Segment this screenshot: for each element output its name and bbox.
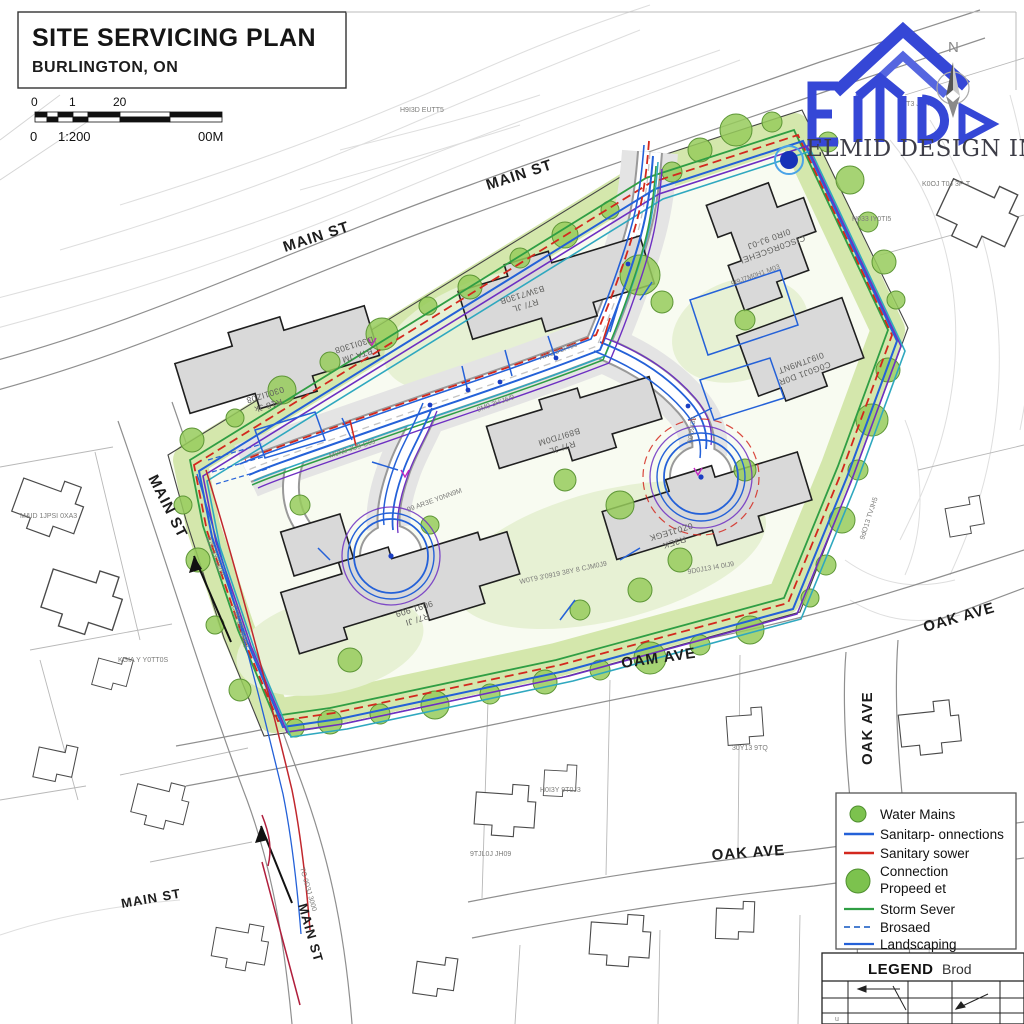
north-label: N: [948, 39, 959, 56]
scale-tick-20: 20: [113, 95, 127, 109]
annotation-house-ne: K0OJ T0J 3P-T: [922, 181, 971, 188]
legend-table: LEGEND Brod u: [822, 953, 1024, 1024]
street-label-oak-ave-right-vertical: OAK AVE: [859, 691, 876, 765]
annotation-house-w1: M&ID 1JPSI 0XA3: [20, 513, 77, 520]
scale-bar: 0 1 20 0 1:200 00M: [30, 95, 223, 144]
legend-label-water-mains: Water Mains: [880, 807, 956, 822]
scale-tick-1: 1: [69, 95, 76, 109]
plan-canvas: MAIN ST MAIN ST MAIN ST MAIN ST MAIN ST …: [0, 0, 1024, 1024]
legend-label-connection: Connection: [880, 864, 948, 879]
annotation-house-s2: H0I3Y 9T0J3: [540, 787, 581, 794]
company-logo: N ELMID DESIGN INC.: [806, 30, 1024, 162]
street-label-main-st-bottom: MAIN ST: [120, 886, 182, 911]
street-label-oak-ave-bottom: OAK AVE: [711, 842, 786, 864]
annotation-house-s3: 9TJL0J JH09: [470, 851, 511, 858]
plan-title: SITE SERVICING PLAN: [32, 24, 316, 52]
scale-ratio: 1:200: [58, 129, 91, 144]
scale-tick-0: 0: [31, 95, 38, 109]
legend-table-cell-note: u: [835, 1016, 839, 1023]
legend-label-sanitary-connections: Sanitarp- onnections: [880, 827, 1004, 842]
legend-label-proposed: Propeed et: [880, 881, 946, 896]
scale-bar-graphic: [35, 112, 222, 122]
street-label-oak-ave-right: OAK AVE: [921, 599, 997, 636]
legend-table-title-suffix: Brod: [942, 961, 972, 977]
legend-box: Water Mains Sanitarp- onnections Sanitar…: [836, 793, 1016, 952]
legend-label-landscaping: Landscaping: [880, 937, 957, 952]
legend-label-sanitary-sewer: Sanitary sower: [880, 846, 970, 861]
site-servicing-plan: MAIN ST MAIN ST MAIN ST MAIN ST MAIN ST …: [0, 0, 1024, 1024]
elmid-logo-monogram: [812, 30, 992, 143]
annotation-east-vert: 9dO13 TVJH5: [859, 496, 879, 540]
scale-bottom-left: 0: [30, 129, 37, 144]
annotation-contour-note: H9I3D EUTT5: [400, 107, 444, 114]
legend-label-storm-sewer: Storm Sever: [880, 902, 956, 917]
legend-table-title: LEGEND: [868, 961, 934, 978]
company-name: ELMID DESIGN INC.: [806, 136, 1024, 162]
annotation-east: H033 IY0TI5: [852, 216, 891, 223]
scale-bottom-right: 00M: [198, 129, 223, 144]
legend-label-brosaed: Brosaed: [880, 920, 930, 935]
annotation-house-w2: KGIA Y Y0TT0S: [118, 657, 169, 664]
plan-subtitle: BURLINGTON, ON: [32, 59, 178, 76]
annotation-house-s1: 30Y13 9TQ: [732, 745, 768, 752]
